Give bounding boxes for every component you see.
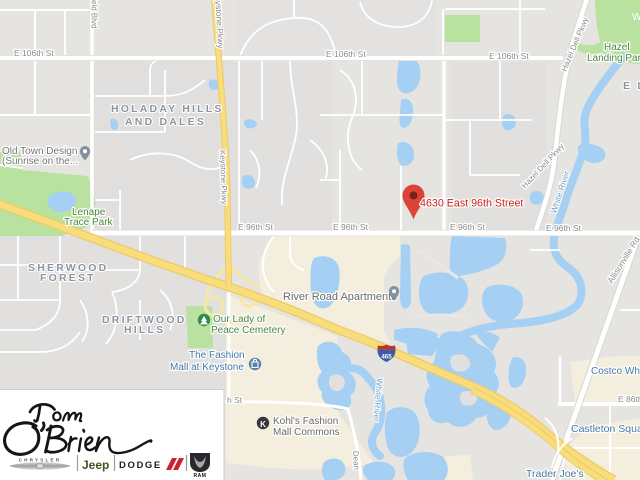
- svg-text:(Sunrise on the...: (Sunrise on the...: [2, 156, 78, 167]
- svg-text:Trader Joe's: Trader Joe's: [526, 468, 584, 480]
- svg-text:Dean: Dean: [351, 451, 361, 471]
- svg-text:4630 East 96th Street: 4630 East 96th Street: [420, 198, 523, 210]
- svg-text:AND DALES: AND DALES: [125, 116, 206, 128]
- svg-text:W: W: [632, 12, 640, 23]
- svg-text:CHRYSLER: CHRYSLER: [19, 458, 62, 463]
- svg-text:E 106th St: E 106th St: [326, 49, 366, 59]
- svg-text:River Road Apartments: River Road Apartments: [283, 291, 397, 303]
- svg-text:K: K: [260, 420, 266, 429]
- svg-text:Costco Wh: Costco Wh: [591, 366, 640, 377]
- svg-text:field Blvd: field Blvd: [90, 0, 99, 28]
- svg-text:Trace Park: Trace Park: [64, 217, 114, 228]
- svg-text:Castleton Square: Castleton Square: [571, 423, 640, 435]
- svg-text:RAM: RAM: [194, 473, 207, 479]
- svg-text:Jeep: Jeep: [82, 458, 109, 472]
- svg-text:DODGE: DODGE: [119, 460, 162, 471]
- svg-text:465: 465: [381, 354, 392, 361]
- svg-text:Hazel: Hazel: [604, 42, 630, 53]
- svg-text:h St: h St: [227, 395, 243, 405]
- svg-text:E 86th S: E 86th S: [618, 394, 640, 404]
- svg-text:E 96th St: E 96th St: [450, 222, 486, 232]
- svg-text:HOLADAY HILLS: HOLADAY HILLS: [111, 103, 224, 115]
- svg-text:Peace Cemetery: Peace Cemetery: [211, 325, 285, 336]
- svg-text:FOREST: FOREST: [40, 272, 96, 284]
- svg-text:Our Lady of: Our Lady of: [213, 314, 265, 325]
- svg-text:Landing Park: Landing Park: [587, 53, 640, 64]
- svg-text:E L: E L: [623, 80, 640, 92]
- svg-text:Mall at Keystone: Mall at Keystone: [170, 362, 244, 373]
- svg-text:Keystone Pkwy: Keystone Pkwy: [218, 150, 229, 205]
- svg-text:E 96th St: E 96th St: [333, 222, 369, 232]
- svg-text:E 106th St: E 106th St: [489, 51, 529, 61]
- svg-text:E 96th St: E 96th St: [238, 222, 274, 232]
- svg-text:Mall Commons: Mall Commons: [273, 427, 340, 438]
- svg-text:E 96th St: E 96th St: [546, 223, 582, 233]
- svg-text:HILLS: HILLS: [124, 324, 165, 336]
- svg-text:E 106th St: E 106th St: [14, 48, 54, 58]
- svg-text:Kohl's Fashion: Kohl's Fashion: [273, 416, 338, 427]
- svg-text:The Fashion: The Fashion: [189, 350, 245, 361]
